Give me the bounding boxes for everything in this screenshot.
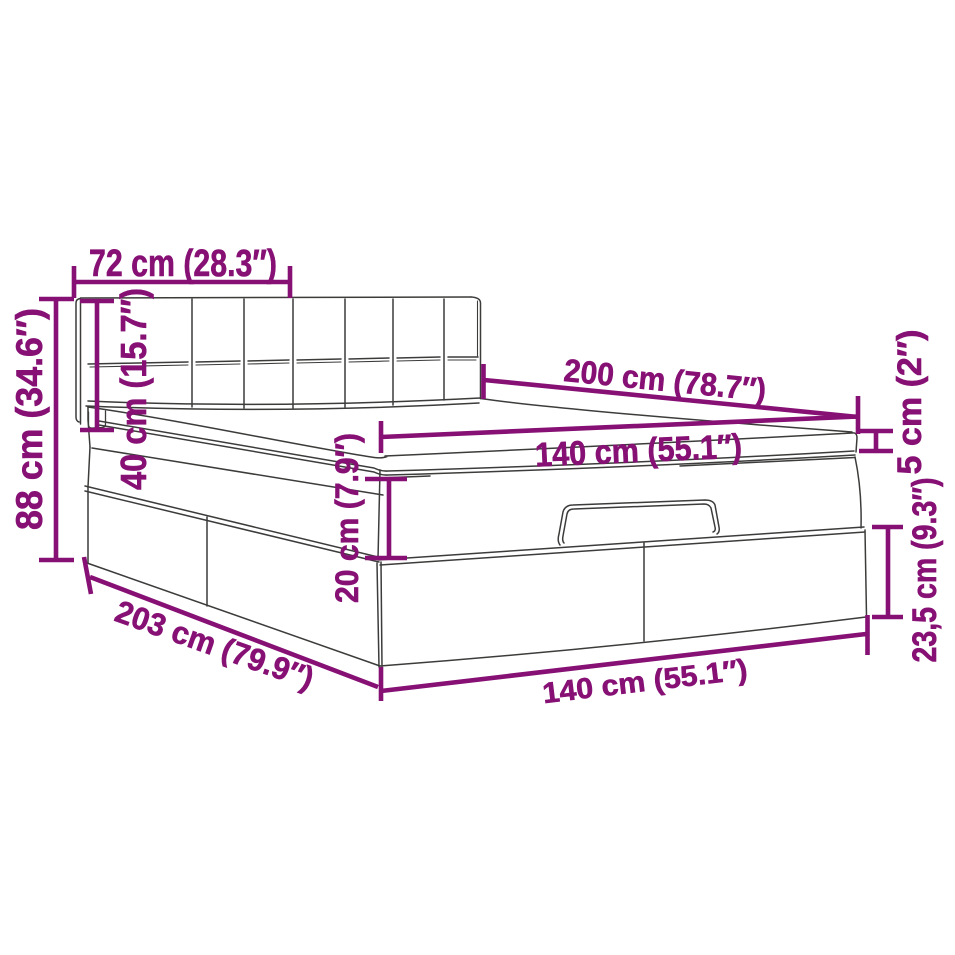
svg-text:20 cm (7.9″): 20 cm (7.9″) xyxy=(329,433,365,603)
svg-text:40 cm (15.7″): 40 cm (15.7″) xyxy=(113,288,154,490)
svg-text:5 cm (2″): 5 cm (2″) xyxy=(891,330,929,475)
svg-text:72 cm (28.3″): 72 cm (28.3″) xyxy=(89,243,277,285)
svg-text:23,5 cm (9.3″): 23,5 cm (9.3″) xyxy=(906,478,944,663)
svg-text:88 cm (34.6″): 88 cm (34.6″) xyxy=(9,308,50,530)
